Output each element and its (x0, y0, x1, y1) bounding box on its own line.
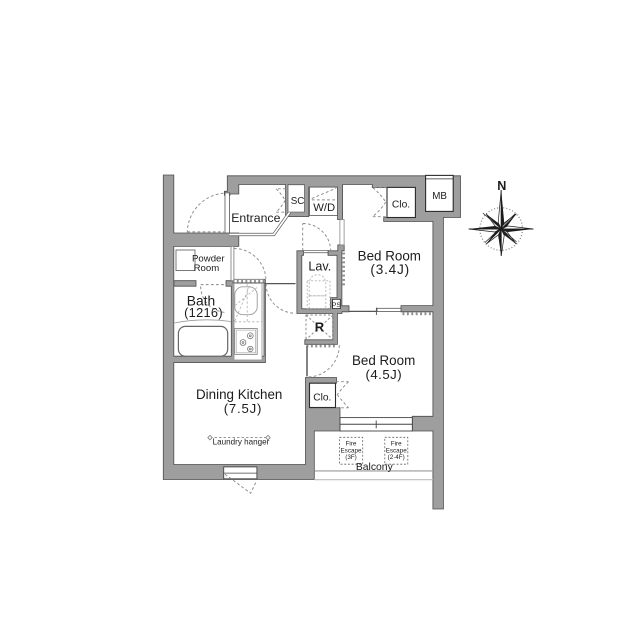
svg-text:Clo.: Clo. (392, 200, 410, 211)
svg-text:(3F): (3F) (345, 454, 357, 461)
svg-text:R: R (315, 320, 325, 335)
svg-text:N: N (497, 179, 506, 193)
svg-text:Room: Room (194, 263, 220, 274)
svg-text:W/D: W/D (313, 202, 335, 214)
svg-text:Entrance: Entrance (231, 211, 280, 225)
svg-text:Bed Room: Bed Room (352, 353, 415, 368)
svg-text:SC: SC (291, 196, 305, 207)
svg-text:Dining Kitchen: Dining Kitchen (196, 387, 282, 402)
svg-text:(7.5J): (7.5J) (224, 401, 263, 416)
svg-text:(1216): (1216) (184, 305, 223, 320)
svg-text:(2·4F): (2·4F) (388, 454, 405, 461)
svg-text:Laundry hanger: Laundry hanger (213, 438, 270, 447)
svg-text:Lav.: Lav. (308, 260, 331, 274)
svg-text:PS: PS (332, 302, 342, 309)
svg-text:MB: MB (432, 191, 447, 202)
svg-text:(4.5J): (4.5J) (365, 367, 402, 382)
svg-text:Clo.: Clo. (313, 392, 331, 403)
svg-text:(3.4J): (3.4J) (370, 262, 410, 277)
svg-text:Balcony: Balcony (356, 462, 394, 473)
